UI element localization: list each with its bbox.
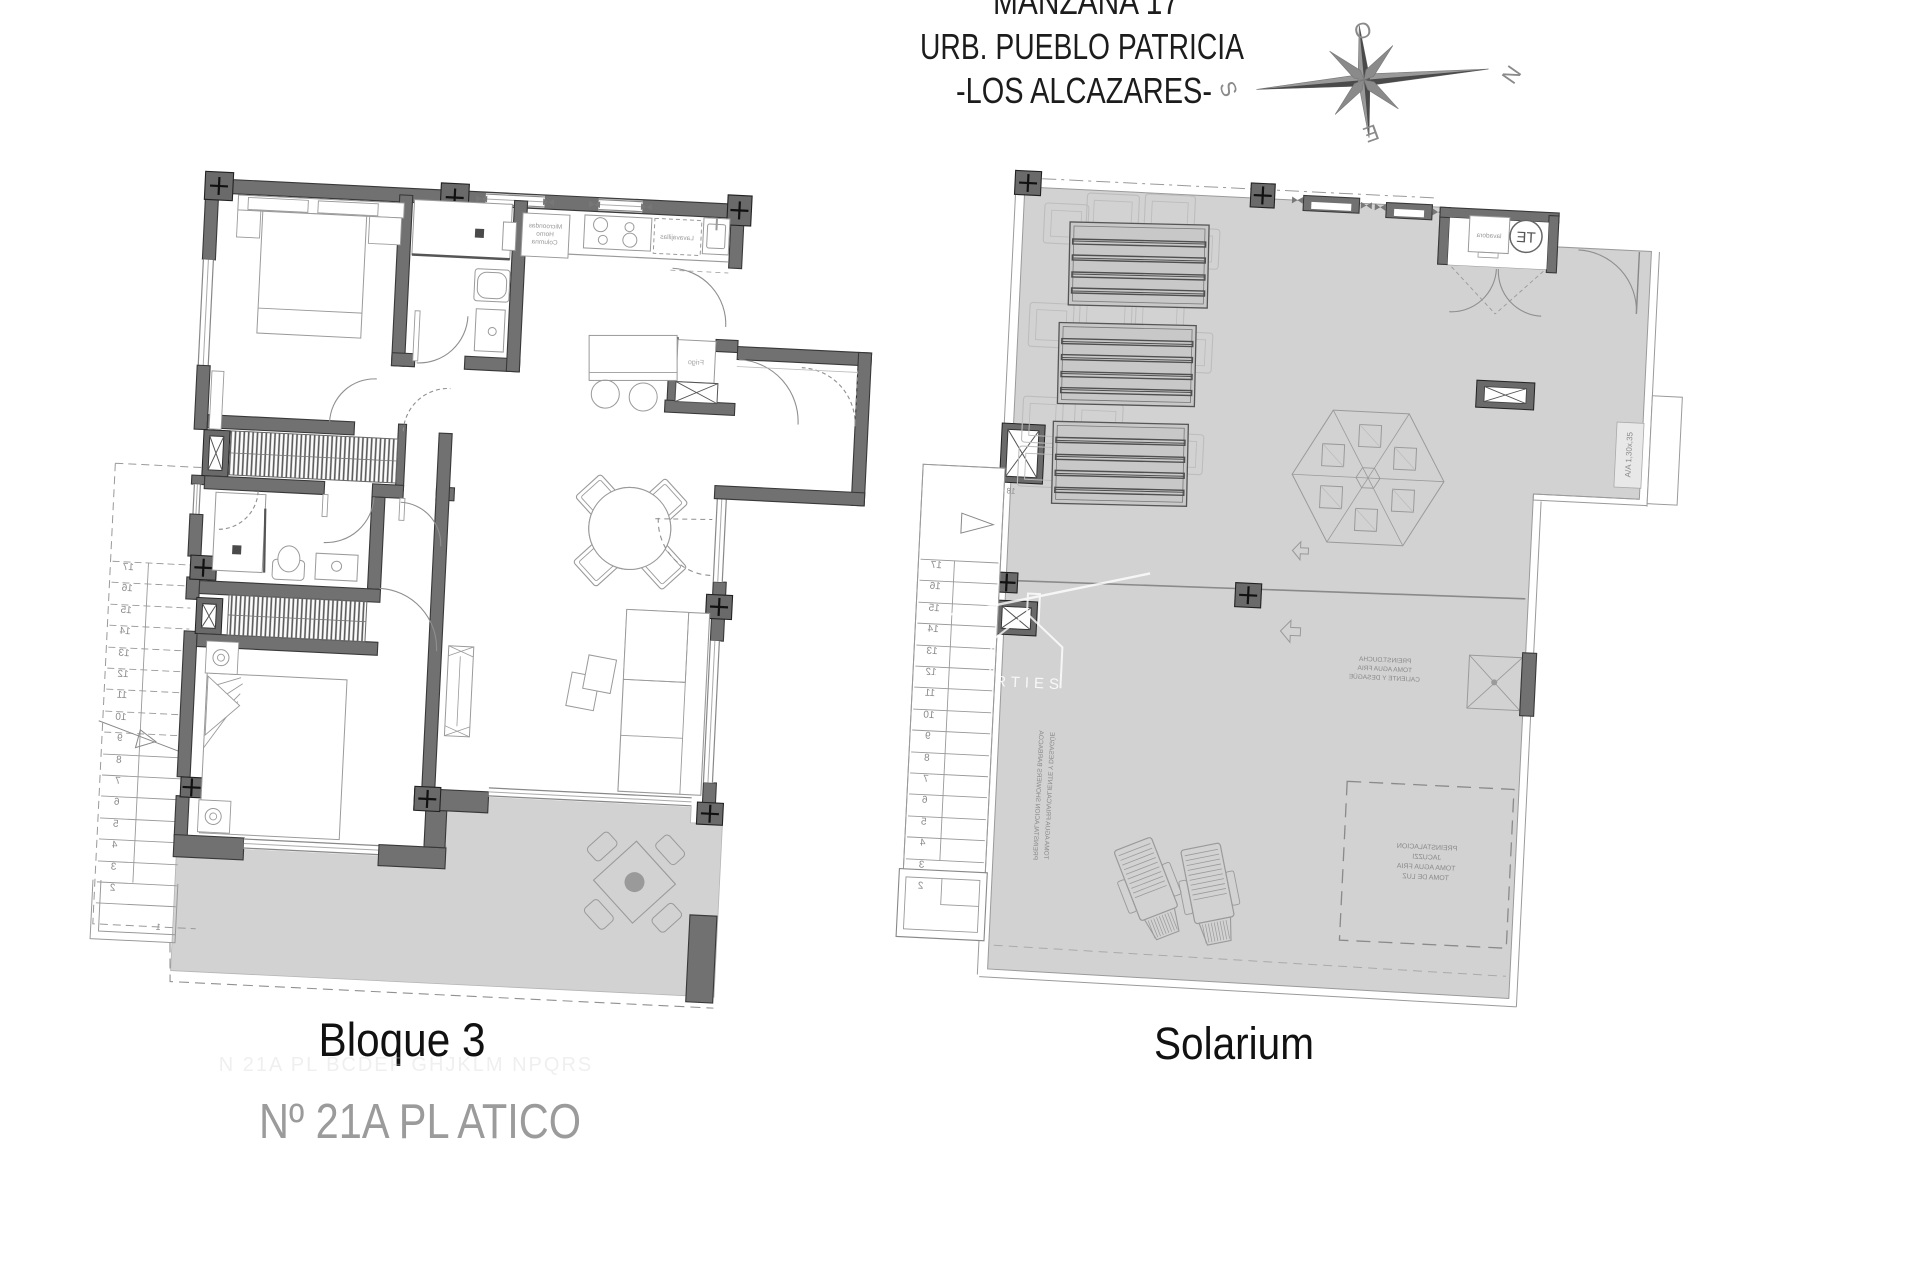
- svg-text:4: 4: [919, 837, 926, 848]
- svg-text:TE: TE: [1516, 229, 1536, 247]
- svg-text:URB. PUEBLO PATRICIA: URB. PUEBLO PATRICIA: [920, 26, 1244, 67]
- svg-text:14: 14: [927, 624, 939, 636]
- svg-text:16: 16: [121, 583, 133, 595]
- svg-text:5: 5: [920, 817, 927, 828]
- svg-text:2: 2: [917, 880, 924, 891]
- svg-text:15: 15: [120, 605, 132, 617]
- svg-text:Nº 21A PL ATICO: Nº 21A PL ATICO: [259, 1095, 581, 1149]
- svg-text:13: 13: [926, 646, 938, 658]
- svg-text:11: 11: [116, 690, 127, 702]
- svg-text:Columna: Columna: [531, 238, 558, 246]
- svg-text:4: 4: [111, 840, 118, 851]
- svg-text:7: 7: [114, 776, 121, 787]
- svg-text:9: 9: [116, 733, 123, 744]
- svg-text:12: 12: [117, 669, 129, 681]
- svg-text:6: 6: [113, 797, 120, 808]
- svg-text:15: 15: [928, 603, 940, 615]
- svg-text:lavadora: lavadora: [1476, 232, 1502, 240]
- svg-text:14: 14: [119, 626, 131, 638]
- svg-text:1: 1: [155, 922, 160, 932]
- svg-text:Horno: Horno: [536, 231, 554, 239]
- svg-text:18: 18: [1006, 486, 1016, 495]
- svg-text:3: 3: [110, 862, 117, 873]
- svg-text:5: 5: [112, 819, 119, 830]
- svg-text:10: 10: [923, 710, 935, 722]
- svg-text:2: 2: [109, 882, 116, 893]
- svg-text:N 21A PL BCDEF GHJKLM NPQR: N 21A PL BCDEF GHJKLM NPQRS: [219, 1054, 593, 1076]
- svg-text:Frigo: Frigo: [688, 359, 704, 367]
- svg-text:Solarium: Solarium: [1154, 1018, 1314, 1069]
- svg-text:8: 8: [115, 755, 122, 766]
- svg-text:6: 6: [921, 795, 928, 806]
- svg-text:17: 17: [122, 562, 134, 574]
- svg-text:-LOS ALCAZARES-: -LOS ALCAZARES-: [956, 70, 1212, 111]
- svg-text:9: 9: [924, 731, 931, 742]
- svg-text:10: 10: [115, 712, 127, 724]
- svg-text:17: 17: [930, 560, 942, 572]
- svg-text:8: 8: [923, 753, 930, 764]
- svg-text:11: 11: [924, 688, 935, 700]
- svg-text:JACUZZI: JACUZZI: [1412, 854, 1441, 862]
- svg-text:16: 16: [929, 581, 941, 593]
- svg-text:3: 3: [918, 859, 925, 870]
- svg-text:MANZANA 17: MANZANA 17: [993, 0, 1179, 22]
- svg-text:13: 13: [118, 648, 130, 660]
- svg-text:7: 7: [922, 774, 929, 785]
